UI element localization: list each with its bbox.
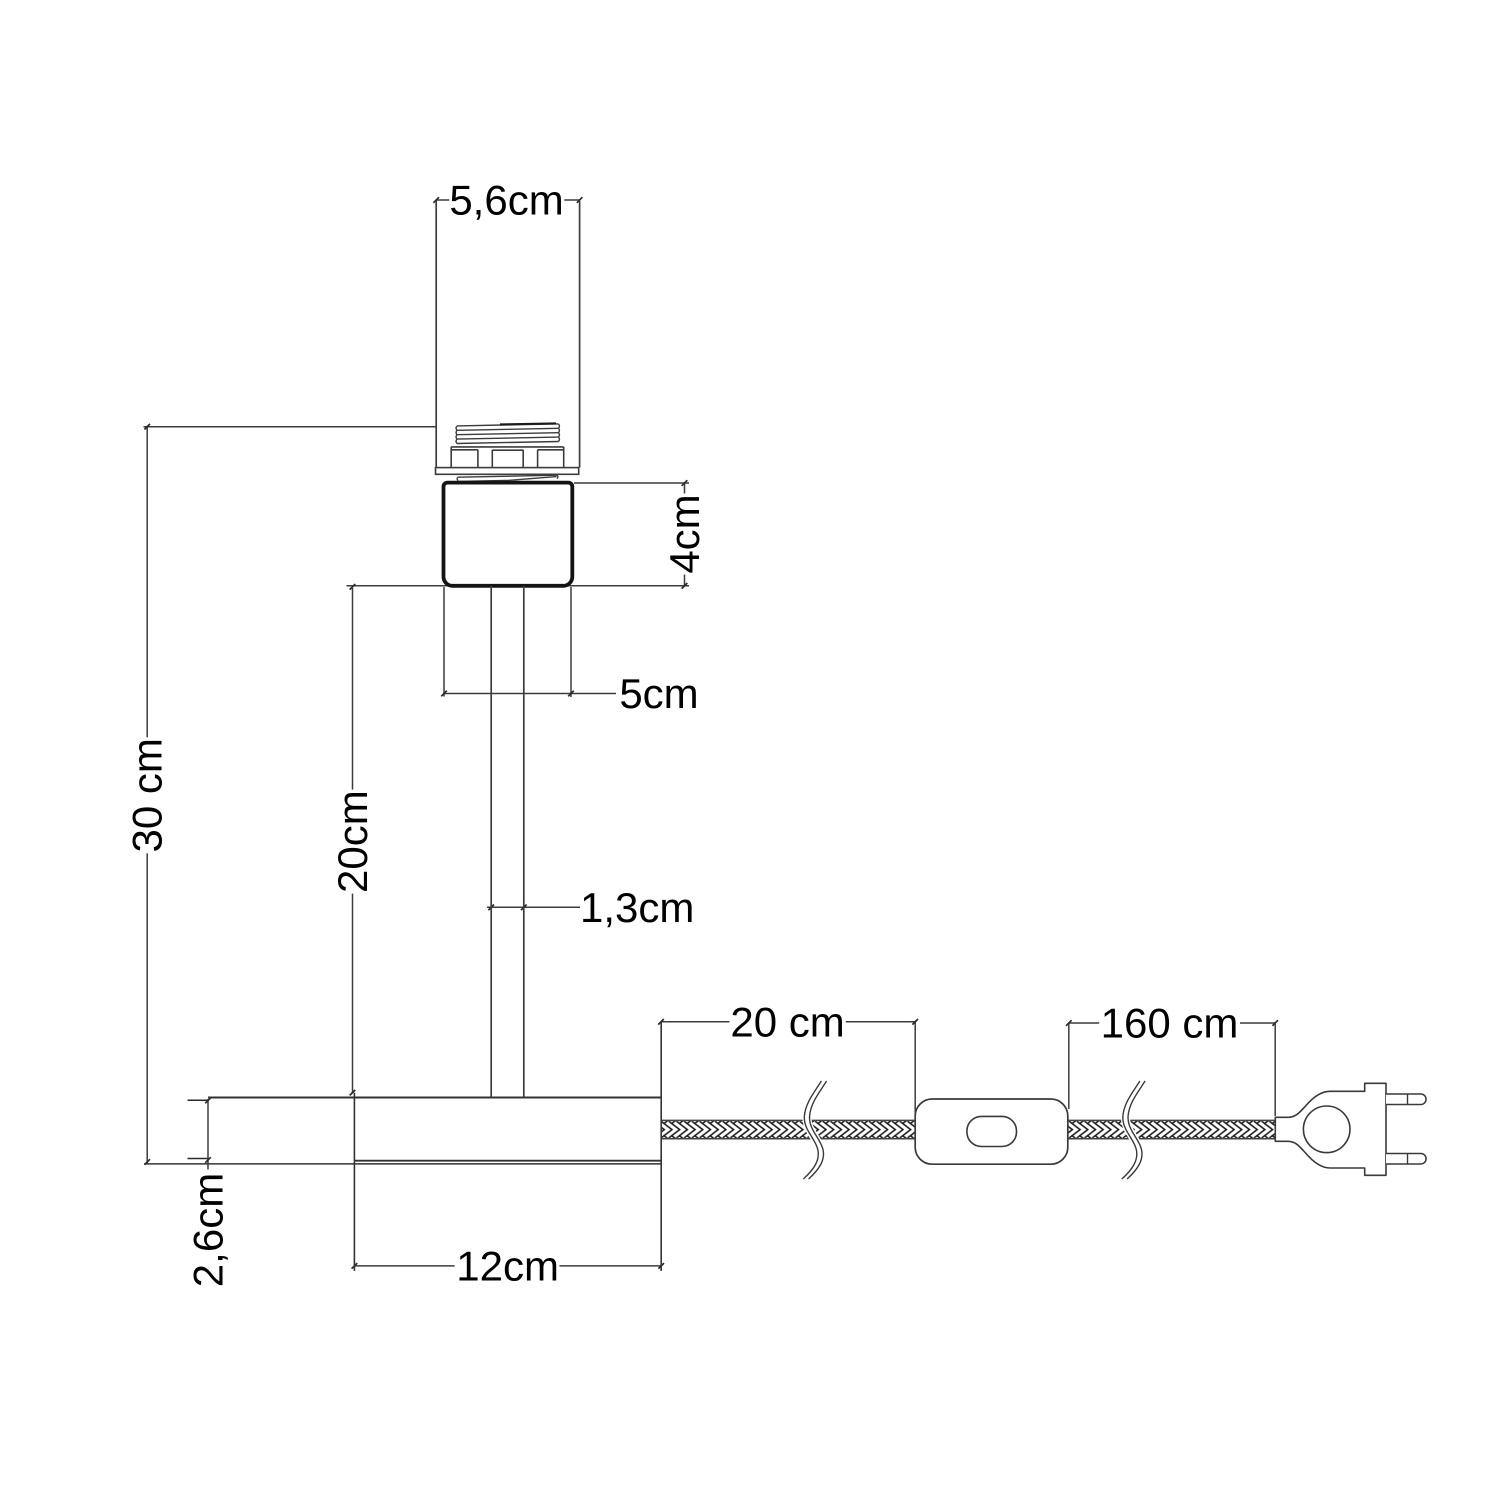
svg-text:5cm: 5cm: [619, 670, 698, 717]
svg-text:4cm: 4cm: [661, 494, 708, 573]
svg-text:1,3cm: 1,3cm: [580, 884, 694, 931]
svg-text:20 cm: 20 cm: [730, 998, 844, 1045]
svg-text:160 cm: 160 cm: [1101, 1000, 1239, 1047]
svg-text:5,6cm: 5,6cm: [449, 177, 563, 224]
svg-text:20cm: 20cm: [329, 790, 376, 893]
svg-text:30 cm: 30 cm: [124, 738, 171, 852]
svg-text:2,6cm: 2,6cm: [185, 1173, 232, 1287]
svg-text:12cm: 12cm: [456, 1242, 559, 1289]
